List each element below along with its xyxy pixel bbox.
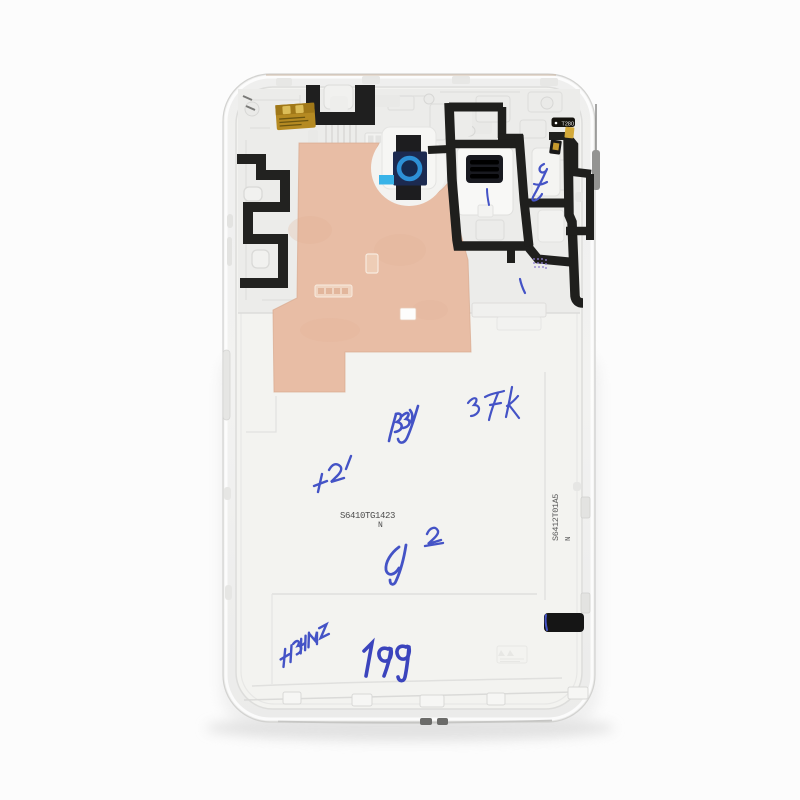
svg-text:T280: T280 [562, 122, 575, 128]
svg-text:S6412T01A5: S6412T01A5 [551, 494, 561, 541]
svg-text:N: N [565, 536, 573, 541]
svg-text:N: N [378, 521, 383, 530]
svg-text:S6410TG1423: S6410TG1423 [340, 511, 395, 521]
